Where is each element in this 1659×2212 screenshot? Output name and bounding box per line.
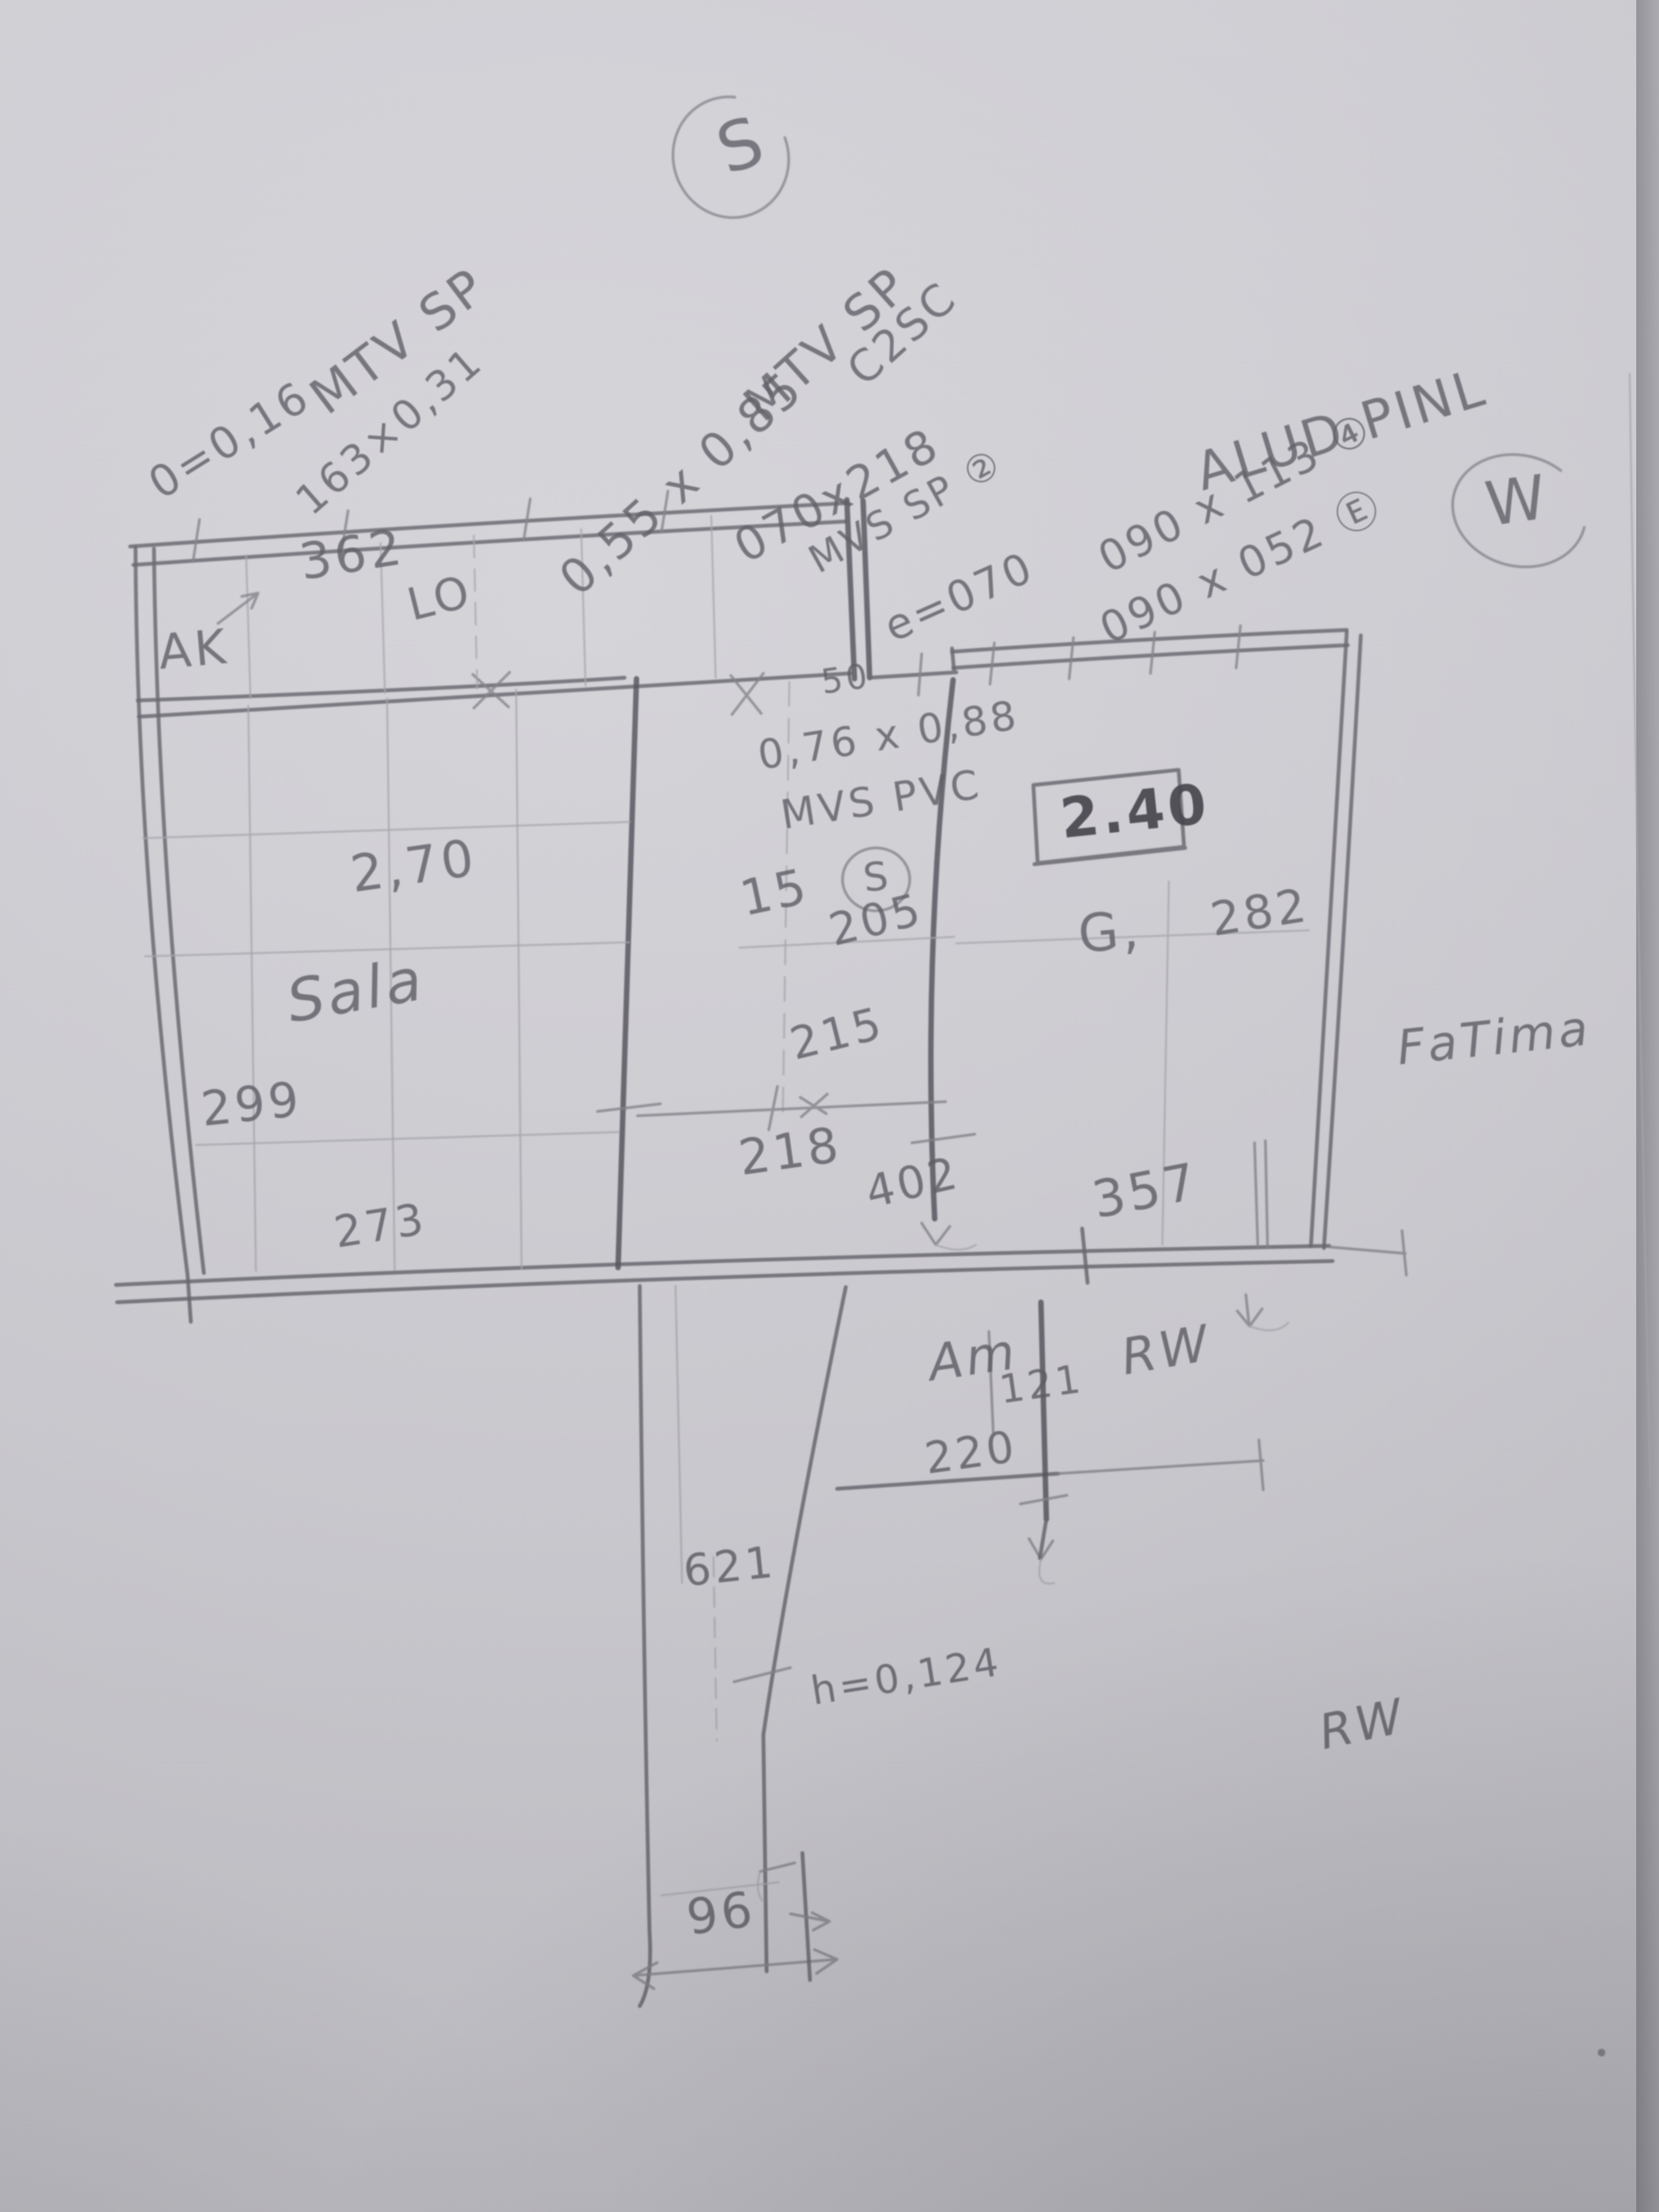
compass-west-label: W <box>1481 462 1554 541</box>
dim-299: 299 <box>198 1071 305 1137</box>
fifty-note: 50 <box>819 655 873 702</box>
ak-note: AK <box>156 619 231 680</box>
wall-am-right <box>1041 1302 1046 1519</box>
wall-sala-right <box>618 679 636 1268</box>
photo-of-sketch: S W MTV SP 0=0,16 163×0,31 MTV SP 0,55 x… <box>0 0 1659 2212</box>
stray-dot <box>1598 2049 1605 2056</box>
paper-edge-line <box>1630 374 1650 1488</box>
wall-right <box>1311 632 1361 1248</box>
dim-621: 621 <box>681 1536 778 1596</box>
dim-96: 96 <box>683 1880 759 1946</box>
g-note: G, <box>1076 899 1144 965</box>
